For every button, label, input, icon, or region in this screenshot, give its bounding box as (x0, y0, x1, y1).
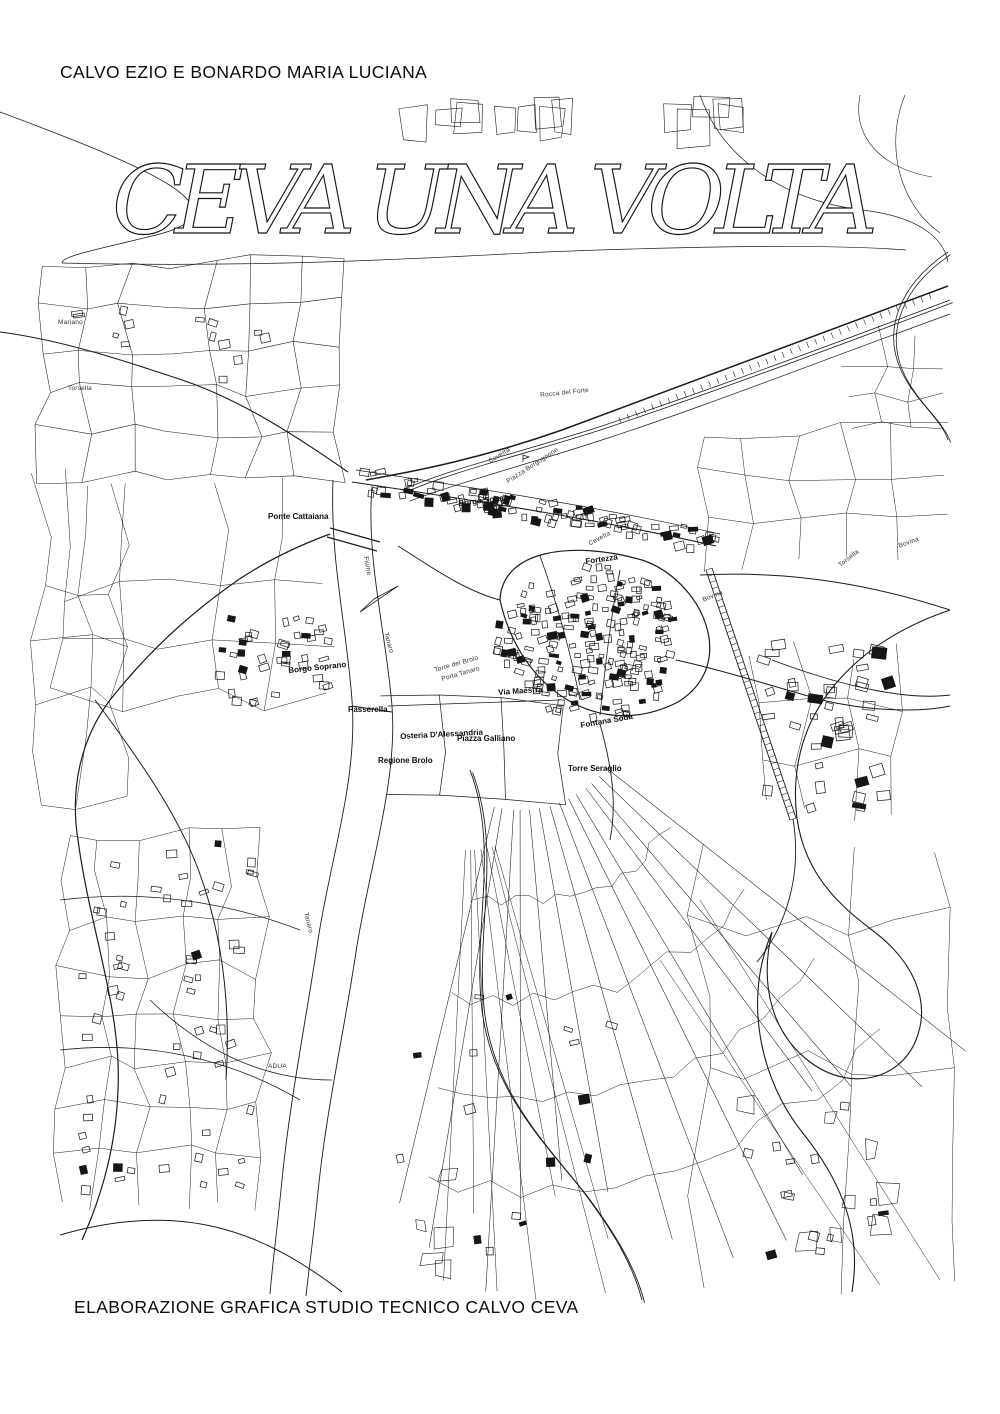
map-label: Torsella (68, 386, 92, 393)
map-label: Piazza Galliano (457, 735, 515, 743)
map-title: CEVA UNA VOLTA (112, 146, 878, 256)
credit-line: ELABORAZIONE GRAFICA STUDIO TECNICO CALV… (74, 1297, 579, 1318)
map-label: Regione Brolo (378, 757, 433, 765)
map-label: Ponte Cattaiana (268, 513, 328, 521)
map-label: Torre Seraglio (568, 765, 622, 773)
map-label: ADUA (268, 1064, 287, 1071)
map-linework (0, 95, 966, 1303)
map-decorations (360, 455, 529, 612)
map-label: Mariano (58, 320, 83, 327)
map-label: Passerella (348, 706, 388, 714)
map-canvas: CEVA UNA VOLTA (0, 0, 1000, 1414)
map-sheet: CALVO EZIO E BONARDO MARIA LUCIANA CEVA … (0, 0, 1000, 1414)
